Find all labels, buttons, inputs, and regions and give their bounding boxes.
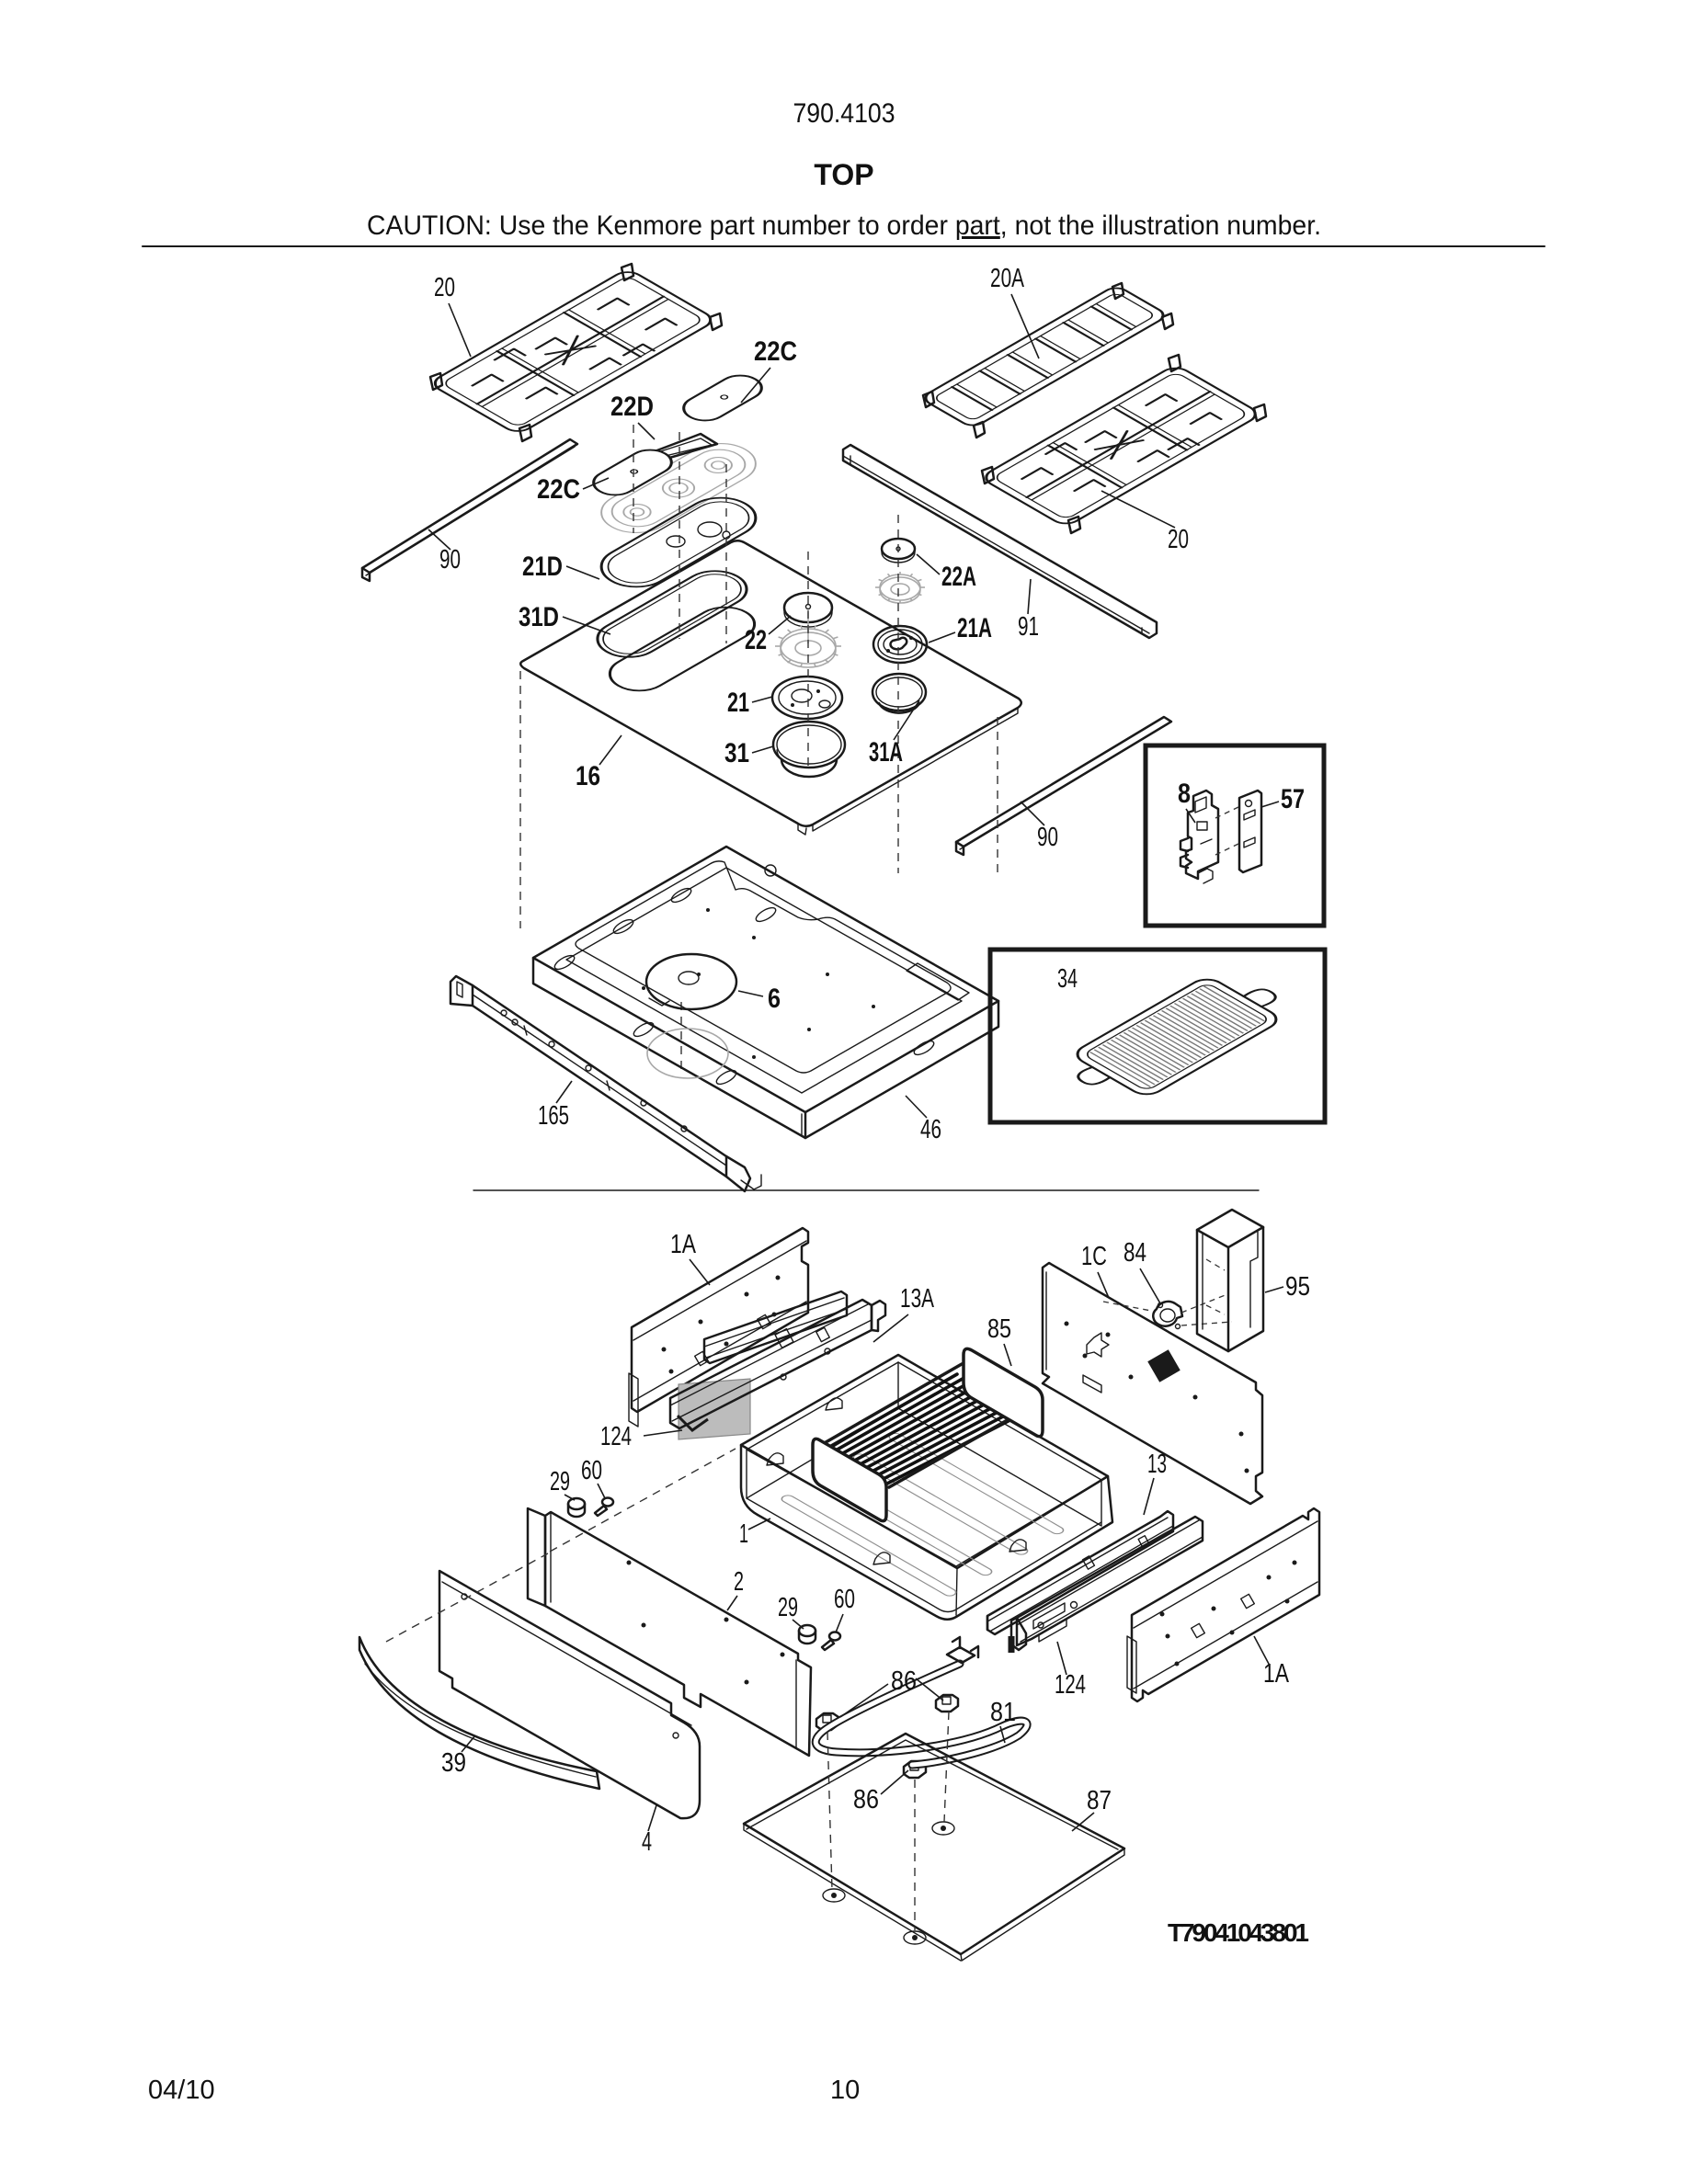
svg-text:29: 29 [778, 1593, 798, 1622]
svg-text:29: 29 [550, 1467, 570, 1496]
svg-text:87: 87 [1087, 1786, 1112, 1815]
svg-text:10: 10 [830, 2076, 860, 2105]
svg-text:60: 60 [581, 1456, 602, 1485]
svg-text:91: 91 [1018, 612, 1039, 642]
svg-text:22A: 22A [941, 562, 976, 592]
svg-text:1C: 1C [1081, 1242, 1107, 1271]
svg-text:81: 81 [990, 1698, 1016, 1727]
svg-text:46: 46 [920, 1115, 941, 1144]
svg-text:31: 31 [724, 738, 749, 768]
svg-text:22: 22 [745, 625, 767, 655]
svg-text:20: 20 [434, 273, 455, 302]
svg-text:85: 85 [987, 1314, 1011, 1344]
svg-text:84: 84 [1123, 1238, 1146, 1268]
svg-text:21: 21 [727, 688, 749, 718]
svg-text:124: 124 [600, 1422, 632, 1451]
svg-text:86: 86 [891, 1666, 917, 1696]
svg-text:6: 6 [768, 984, 781, 1014]
svg-text:790.4103: 790.4103 [793, 98, 895, 129]
svg-text:90: 90 [1037, 823, 1058, 852]
svg-text:60: 60 [834, 1585, 855, 1614]
svg-text:04/10: 04/10 [148, 2076, 215, 2105]
svg-text:TOP: TOP [814, 158, 873, 191]
svg-text:T79041043801: T79041043801 [1168, 1918, 1309, 1947]
svg-text:16: 16 [576, 761, 600, 791]
svg-text:22D: 22D [610, 392, 654, 422]
svg-text:22C: 22C [754, 336, 797, 367]
svg-text:39: 39 [441, 1748, 466, 1778]
svg-text:20: 20 [1168, 525, 1189, 554]
svg-text:20A: 20A [990, 264, 1024, 293]
svg-text:21A: 21A [957, 613, 992, 643]
svg-text:2: 2 [734, 1567, 744, 1597]
svg-text:95: 95 [1285, 1272, 1310, 1302]
svg-text:1: 1 [739, 1519, 748, 1549]
svg-text:CAUTION: Use the Kenmore part: CAUTION: Use the Kenmore part number to … [367, 210, 1321, 241]
svg-text:124: 124 [1055, 1670, 1086, 1700]
svg-text:1A: 1A [1263, 1659, 1290, 1689]
svg-text:13A: 13A [900, 1284, 934, 1314]
svg-text:57: 57 [1281, 784, 1305, 814]
svg-text:31D: 31D [519, 602, 559, 632]
svg-text:22C: 22C [537, 474, 580, 505]
svg-text:34: 34 [1057, 964, 1078, 994]
svg-text:13: 13 [1147, 1450, 1167, 1479]
svg-text:4: 4 [642, 1827, 652, 1857]
svg-text:1A: 1A [670, 1230, 697, 1259]
svg-text:165: 165 [538, 1101, 569, 1131]
svg-text:8: 8 [1178, 779, 1191, 809]
svg-text:21D: 21D [522, 552, 563, 582]
svg-text:86: 86 [853, 1785, 879, 1814]
svg-text:31A: 31A [869, 737, 903, 768]
